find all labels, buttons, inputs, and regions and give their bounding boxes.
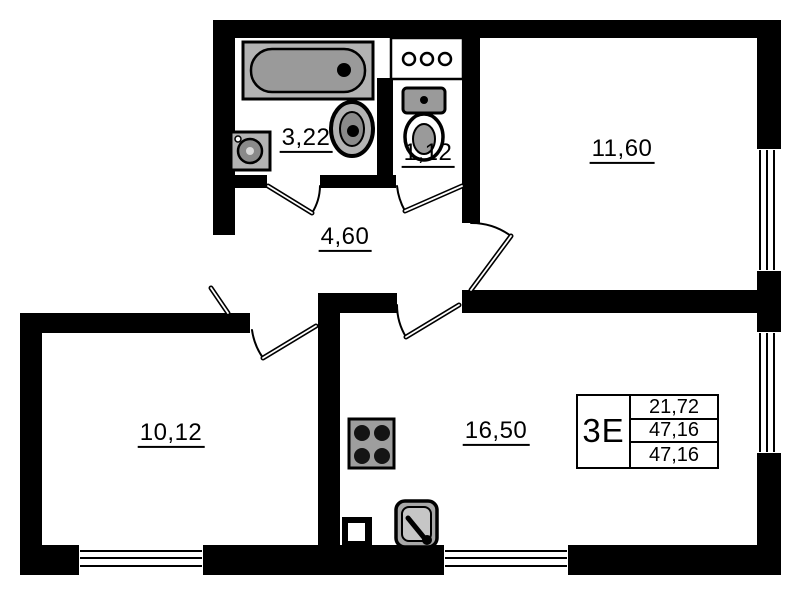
wall-bath-toilet-divider — [377, 78, 393, 178]
wall-left-upper — [213, 20, 235, 235]
room-label-bathroom: 3,22 — [280, 125, 333, 153]
wall-room2-top — [20, 313, 250, 333]
door-bathroom — [268, 186, 320, 213]
wall-kitchen-left — [318, 293, 340, 575]
area-value-living: 21,72 — [631, 396, 717, 420]
door-bedroom — [471, 223, 511, 290]
door-toilet — [397, 186, 462, 211]
floor-plan-drawing — [0, 0, 799, 600]
wall-left-lower — [20, 313, 42, 575]
wall-under-bedroom — [462, 290, 757, 313]
stove-icon — [349, 419, 394, 468]
kitchen-sink-icon — [396, 501, 437, 547]
window-kitchen-bottom — [444, 545, 568, 575]
room-label-hallway: 4,60 — [319, 224, 372, 252]
wall-toilet-bedroom — [462, 38, 480, 223]
walls — [20, 20, 781, 575]
washing-machine-icon — [231, 132, 270, 170]
vent-shaft-icon — [391, 38, 463, 79]
window-bedroom — [757, 149, 781, 271]
wall-bath-seg-left — [235, 175, 267, 188]
room-label-bedroom: 11,60 — [590, 136, 655, 164]
area-value-total-reduced: 47,16 — [631, 443, 717, 467]
door-room2 — [252, 326, 316, 358]
wall-top — [215, 20, 780, 38]
washbasin-icon — [331, 102, 373, 156]
window-room2 — [79, 545, 203, 575]
wall-right — [757, 20, 781, 575]
apartment-info-table: 3E 21,72 47,16 47,16 — [576, 394, 719, 469]
floor-plan: 3,22 1,12 4,60 11,60 10,12 16,50 3E 21,7… — [0, 0, 799, 600]
pillar — [342, 517, 372, 548]
bathtub-icon — [243, 42, 373, 99]
door-entrance — [211, 288, 228, 313]
room-label-toilet: 1,12 — [402, 140, 455, 168]
area-value-total: 47,16 — [631, 420, 717, 444]
room-label-room2: 10,12 — [138, 420, 205, 448]
apartment-type: 3E — [578, 396, 631, 467]
door-kitchen — [397, 305, 459, 337]
room-label-kitchen: 16,50 — [463, 418, 530, 446]
window-kitchen-right — [757, 332, 781, 453]
